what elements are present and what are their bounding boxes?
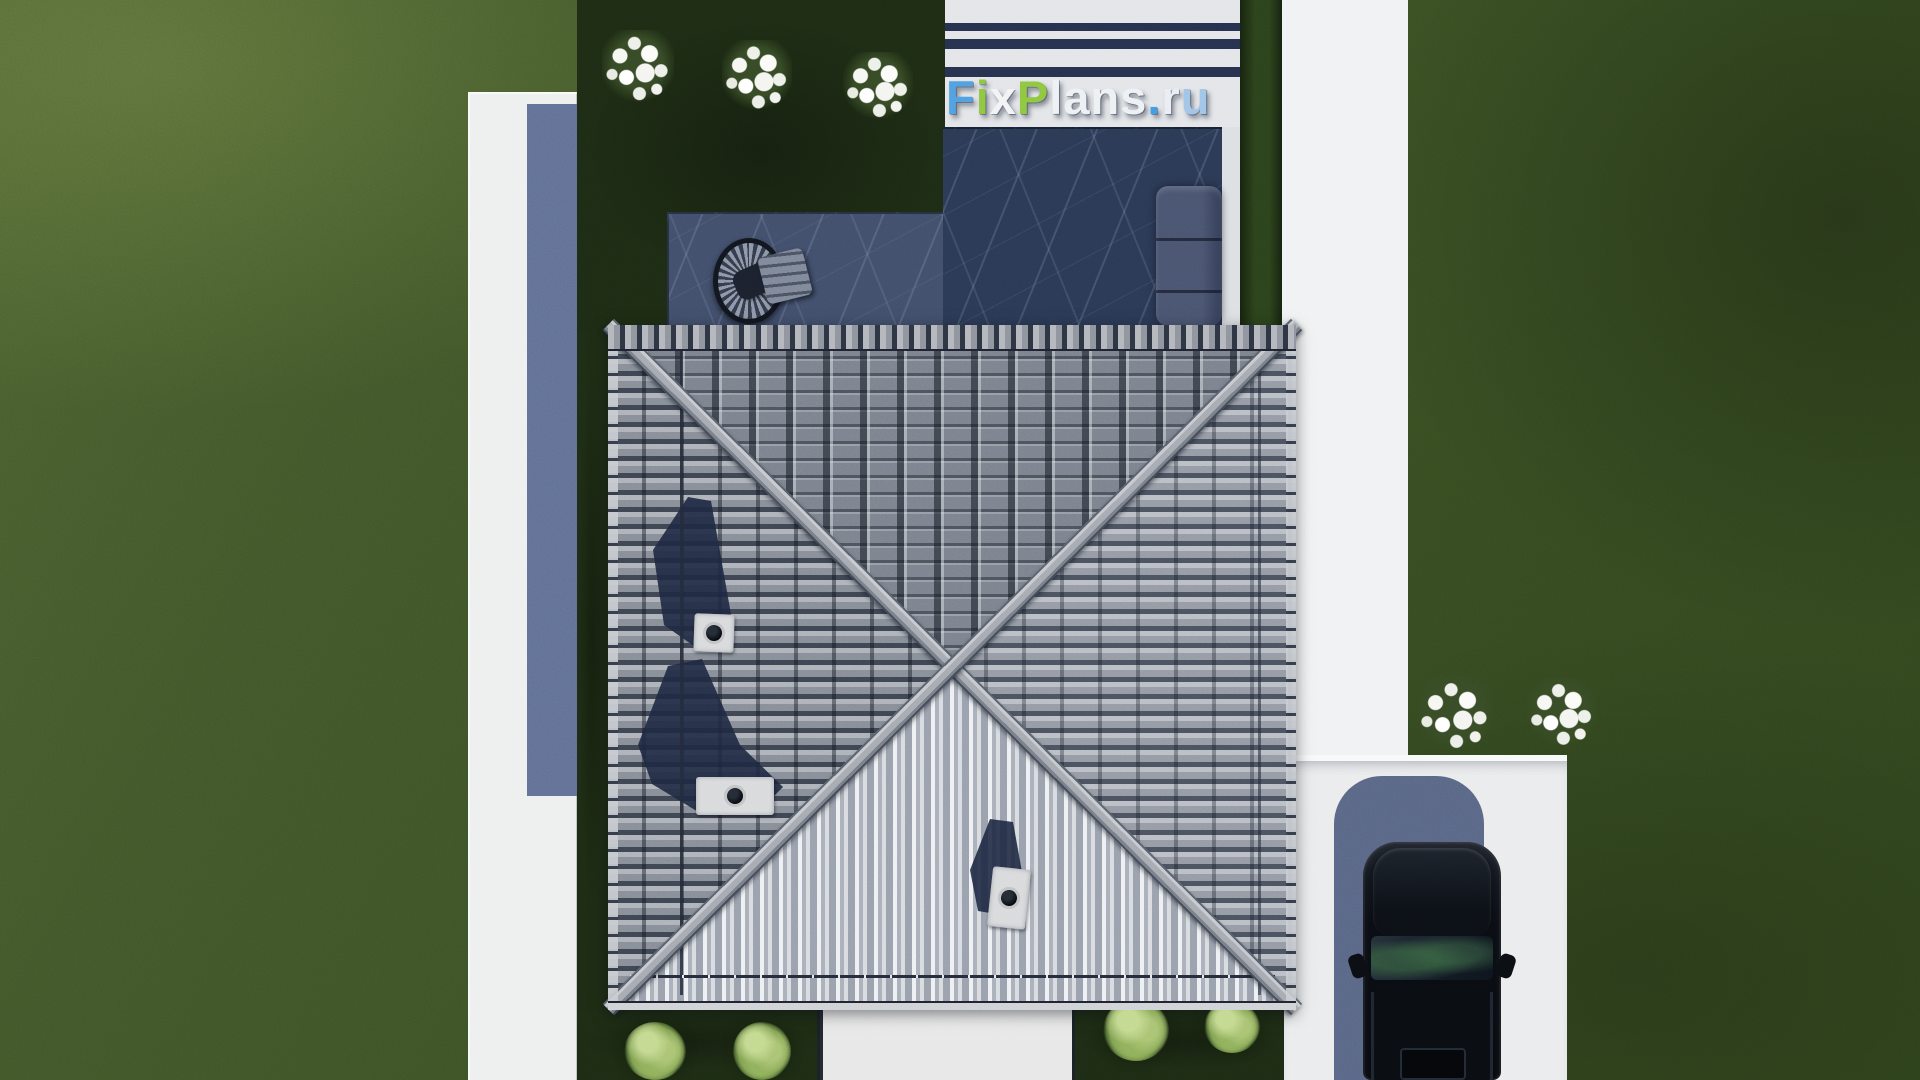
grass-strip-top-right [1240, 0, 1282, 332]
car-roof-rail-right [1490, 992, 1493, 1080]
roof-fascia-west [608, 325, 618, 1010]
garden-path-right [1282, 0, 1408, 762]
roof-eave-bottom [608, 1001, 1296, 1010]
site-plan-render: FixPlans.ru [0, 0, 1920, 1080]
flower-bush [602, 30, 674, 104]
roof-fascia-east [1286, 325, 1296, 1010]
pool-deck-strip [1222, 127, 1240, 332]
watermark-letter: r [1161, 71, 1180, 124]
snow-rail-west [680, 345, 683, 995]
green-shrub [733, 1022, 791, 1080]
flower-bush [1416, 676, 1494, 752]
green-shrub [624, 1022, 686, 1080]
hip-roof [608, 325, 1296, 1010]
flower-bush [843, 52, 913, 120]
suv-car [1363, 842, 1501, 1080]
chimney-single-flue [693, 613, 734, 652]
flower-bush [722, 40, 792, 112]
house-shadow-band [527, 104, 577, 796]
watermark-letter: i [976, 71, 990, 124]
watermark-letter: l [1049, 71, 1063, 124]
watermark-letter: P [1017, 71, 1049, 124]
snow-rail-east [1258, 345, 1261, 995]
watermark-letter: . [1147, 71, 1161, 124]
watermark-letter: x [990, 71, 1017, 124]
flue-opening [703, 622, 726, 645]
watermark-letter: n [1090, 71, 1120, 124]
watermark-letter: F [946, 71, 976, 124]
flower-bush [1527, 678, 1597, 748]
car-hood [1373, 848, 1491, 936]
roof-ridge-top-row [608, 325, 1296, 351]
watermark-text: FixPlans.ru [946, 72, 1210, 124]
watermark-letter: s [1120, 71, 1147, 124]
flue-opening [997, 886, 1021, 910]
outdoor-sofa [1156, 186, 1222, 326]
watermark-letter: a [1063, 71, 1090, 124]
car-windshield [1371, 936, 1493, 980]
watermark-letter: u [1181, 71, 1211, 124]
entrance-walkway [820, 1008, 1072, 1080]
car-roof-rail-left [1371, 992, 1374, 1080]
grass-strip-west [577, 332, 608, 1010]
snow-rail-south [630, 975, 1275, 978]
car-sunroof [1400, 1048, 1466, 1080]
chimney-triple-flue [696, 777, 774, 815]
chimney-double-flue [987, 866, 1031, 930]
flue-opening [724, 785, 746, 807]
